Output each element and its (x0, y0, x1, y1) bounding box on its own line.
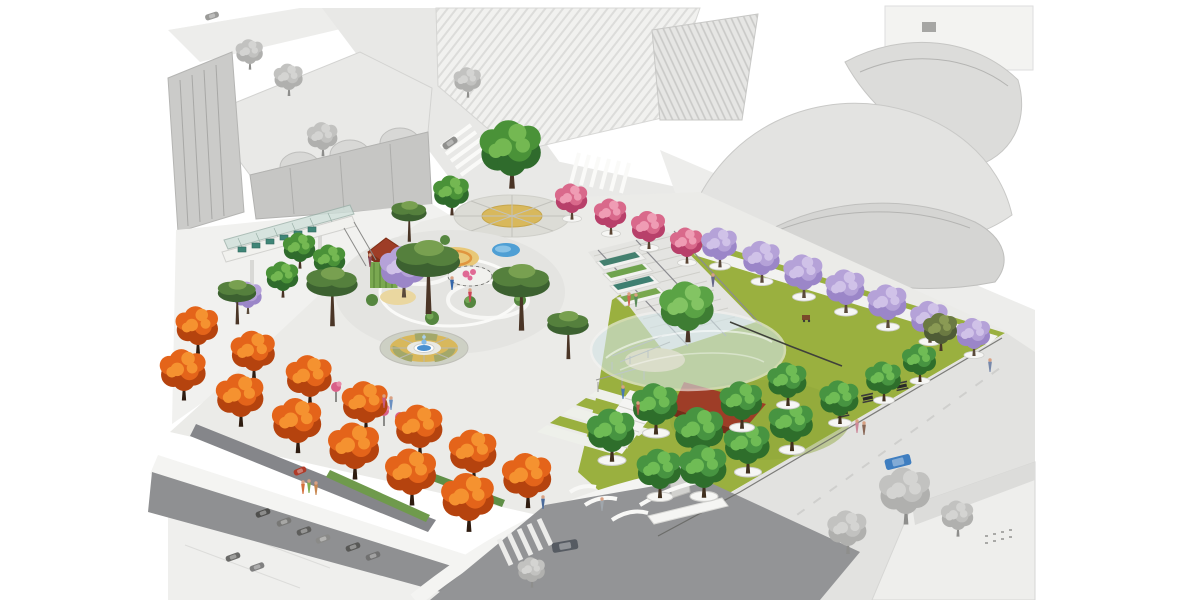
context-gray-tree (236, 39, 263, 69)
person (314, 481, 318, 495)
car (204, 11, 219, 21)
sand-pad (380, 289, 416, 305)
person (301, 480, 305, 494)
person (307, 479, 311, 493)
page (0, 0, 1200, 600)
orange-front-tree (385, 449, 436, 506)
left-context-building (168, 52, 244, 232)
scene-svg (0, 0, 1200, 600)
fountain-water (417, 345, 431, 351)
fountain-plaza (380, 330, 468, 366)
radial-tree-plaza (454, 195, 570, 237)
park-masterplan-rendering (0, 0, 1200, 600)
orange-front-tree (441, 473, 494, 532)
